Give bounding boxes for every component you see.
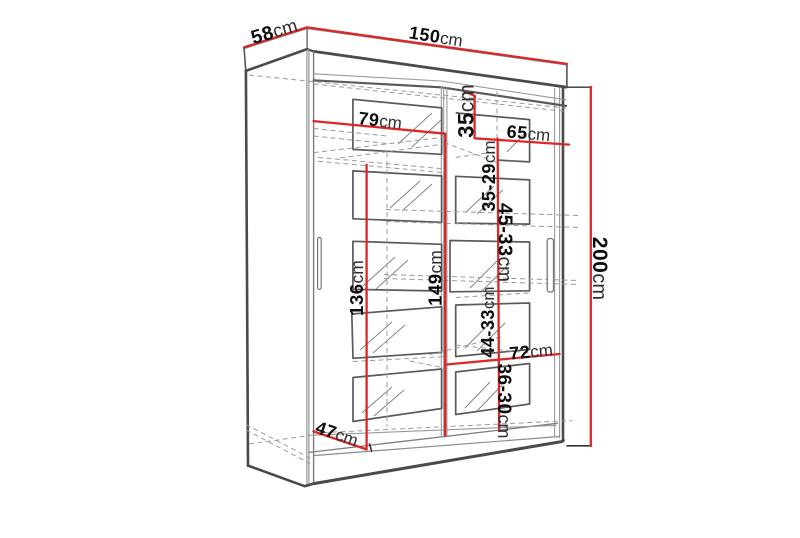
svg-text:136cm: 136cm — [346, 260, 367, 316]
svg-text:65cm: 65cm — [506, 121, 551, 145]
svg-text:36-30cm: 36-30cm — [493, 363, 514, 438]
svg-text:44-33cm: 44-33cm — [478, 286, 498, 357]
svg-text:35cm: 35cm — [454, 84, 479, 137]
svg-text:45-33cm: 45-33cm — [494, 203, 516, 282]
svg-text:149cm: 149cm — [424, 250, 445, 306]
svg-text:200cm: 200cm — [588, 237, 611, 300]
svg-text:72cm: 72cm — [508, 339, 553, 363]
svg-text:35-29cm: 35-29cm — [479, 140, 499, 211]
